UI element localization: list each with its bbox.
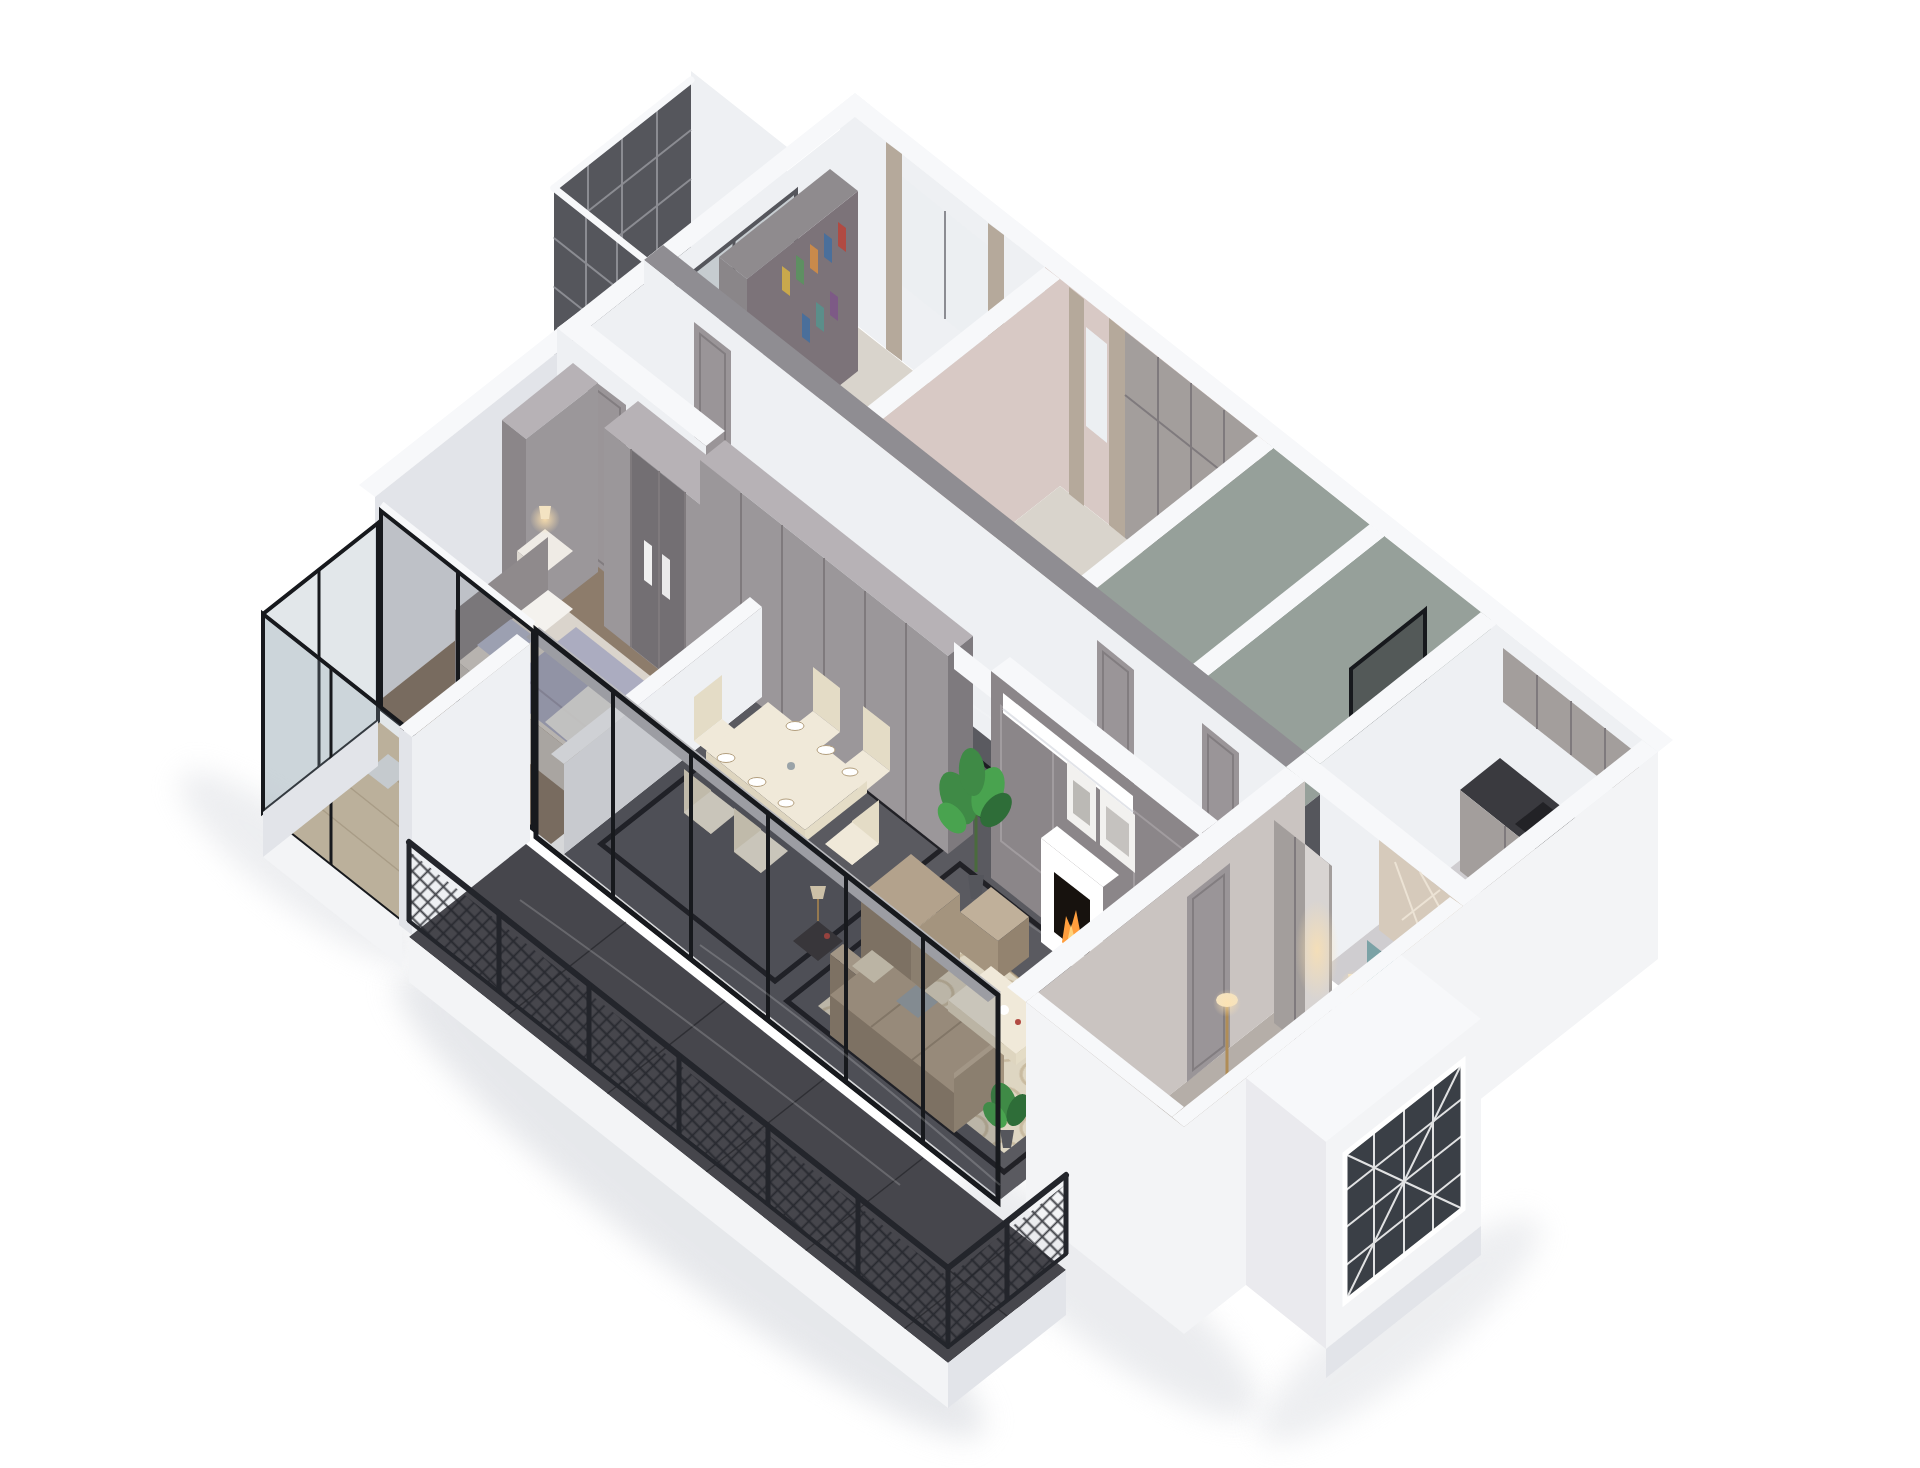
dressing-window — [1086, 327, 1107, 443]
page — [0, 0, 1920, 1468]
curtain — [1069, 287, 1084, 506]
hanging-clothes — [644, 540, 652, 586]
hanging-clothes — [662, 554, 670, 600]
table-lamp — [539, 506, 551, 519]
curtain — [886, 142, 902, 361]
centerpiece — [787, 762, 795, 770]
floorplan-render — [0, 0, 1920, 1468]
curtain — [1109, 318, 1125, 538]
